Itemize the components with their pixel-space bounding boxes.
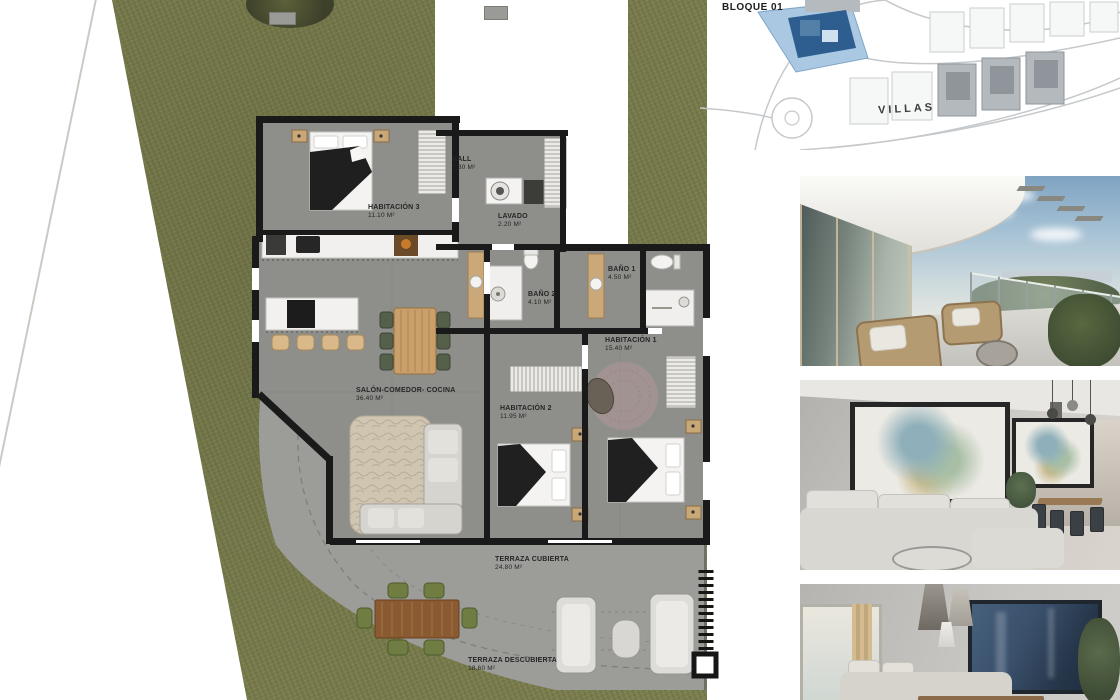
pendant-stem (1072, 380, 1073, 402)
kitchen-counter (262, 232, 458, 260)
siteplan-drawing (700, 0, 1120, 150)
dining-chair (1090, 507, 1104, 532)
wardrobe-habitacion3 (418, 130, 446, 194)
room-label-bano1: BAÑO 14.50 m² (608, 265, 636, 283)
brochure-page: HABITACIÓN 311.10 m² HALL2.80 m² LAVADO2… (0, 0, 1120, 700)
plant (1078, 618, 1120, 700)
wardrobe-habitacion1 (666, 356, 696, 408)
bed-habitacion3 (310, 132, 372, 210)
room-label-habitacion2: HABITACIÓN 211.95 m² (500, 404, 552, 422)
room-label-salon: SALÓN-COMEDOR- COCINA36.40 m² (356, 386, 455, 404)
canopy-slat (1056, 206, 1085, 211)
canopy-slat (1016, 186, 1045, 191)
sofa-cushion (869, 324, 907, 352)
room-label-terraza-cubierta: TERRAZA CUBIERTA24.80 m² (495, 555, 569, 573)
coffee-table (892, 546, 972, 570)
pendant-stem (1090, 380, 1091, 416)
cloud (1030, 228, 1082, 241)
photo-terrace-render (800, 176, 1120, 366)
kitchen-island (266, 298, 358, 332)
room-label-hall: HALL2.80 m² (452, 155, 475, 173)
pendant-light (1085, 414, 1096, 425)
washing-machine (486, 178, 544, 204)
wood-console (918, 696, 1044, 700)
canopy-slat (1036, 196, 1065, 201)
canopy-slat (1074, 216, 1103, 221)
pendant-light (1067, 400, 1078, 411)
art-highlight (1048, 608, 1054, 678)
sofa-chaise (972, 528, 1064, 568)
room-label-lavado: LAVADO2.20 m² (498, 212, 528, 230)
pendant-stem (1052, 380, 1053, 410)
dining-table (380, 308, 450, 374)
wardrobe-habitacion2 (510, 366, 582, 392)
chair-cushion (951, 307, 980, 327)
room-label-terraza-descubierta: TERRAZA DESCUBIERTA18.60 m² (468, 656, 557, 674)
wall-artwork-large (850, 402, 1010, 504)
dining-chair (1070, 511, 1084, 536)
room-label-habitacion3: HABITACIÓN 311.10 m² (368, 203, 420, 221)
siteplan-roundabout (772, 98, 812, 138)
siteplan-block-label: BLOQUE 01 (722, 2, 783, 13)
art-highlight (996, 612, 1006, 676)
dining-table (1037, 498, 1103, 505)
pendant-light (1047, 408, 1058, 419)
plant (1006, 472, 1036, 508)
room-label-bano2: BAÑO 24.10 m² (528, 290, 556, 308)
room-label-habitacion1: HABITACIÓN 115.40 m² (605, 336, 657, 354)
photo-interior-render (800, 584, 1120, 700)
side-table (976, 340, 1018, 366)
plant (1048, 294, 1120, 366)
photo-living-room-render (800, 380, 1120, 570)
